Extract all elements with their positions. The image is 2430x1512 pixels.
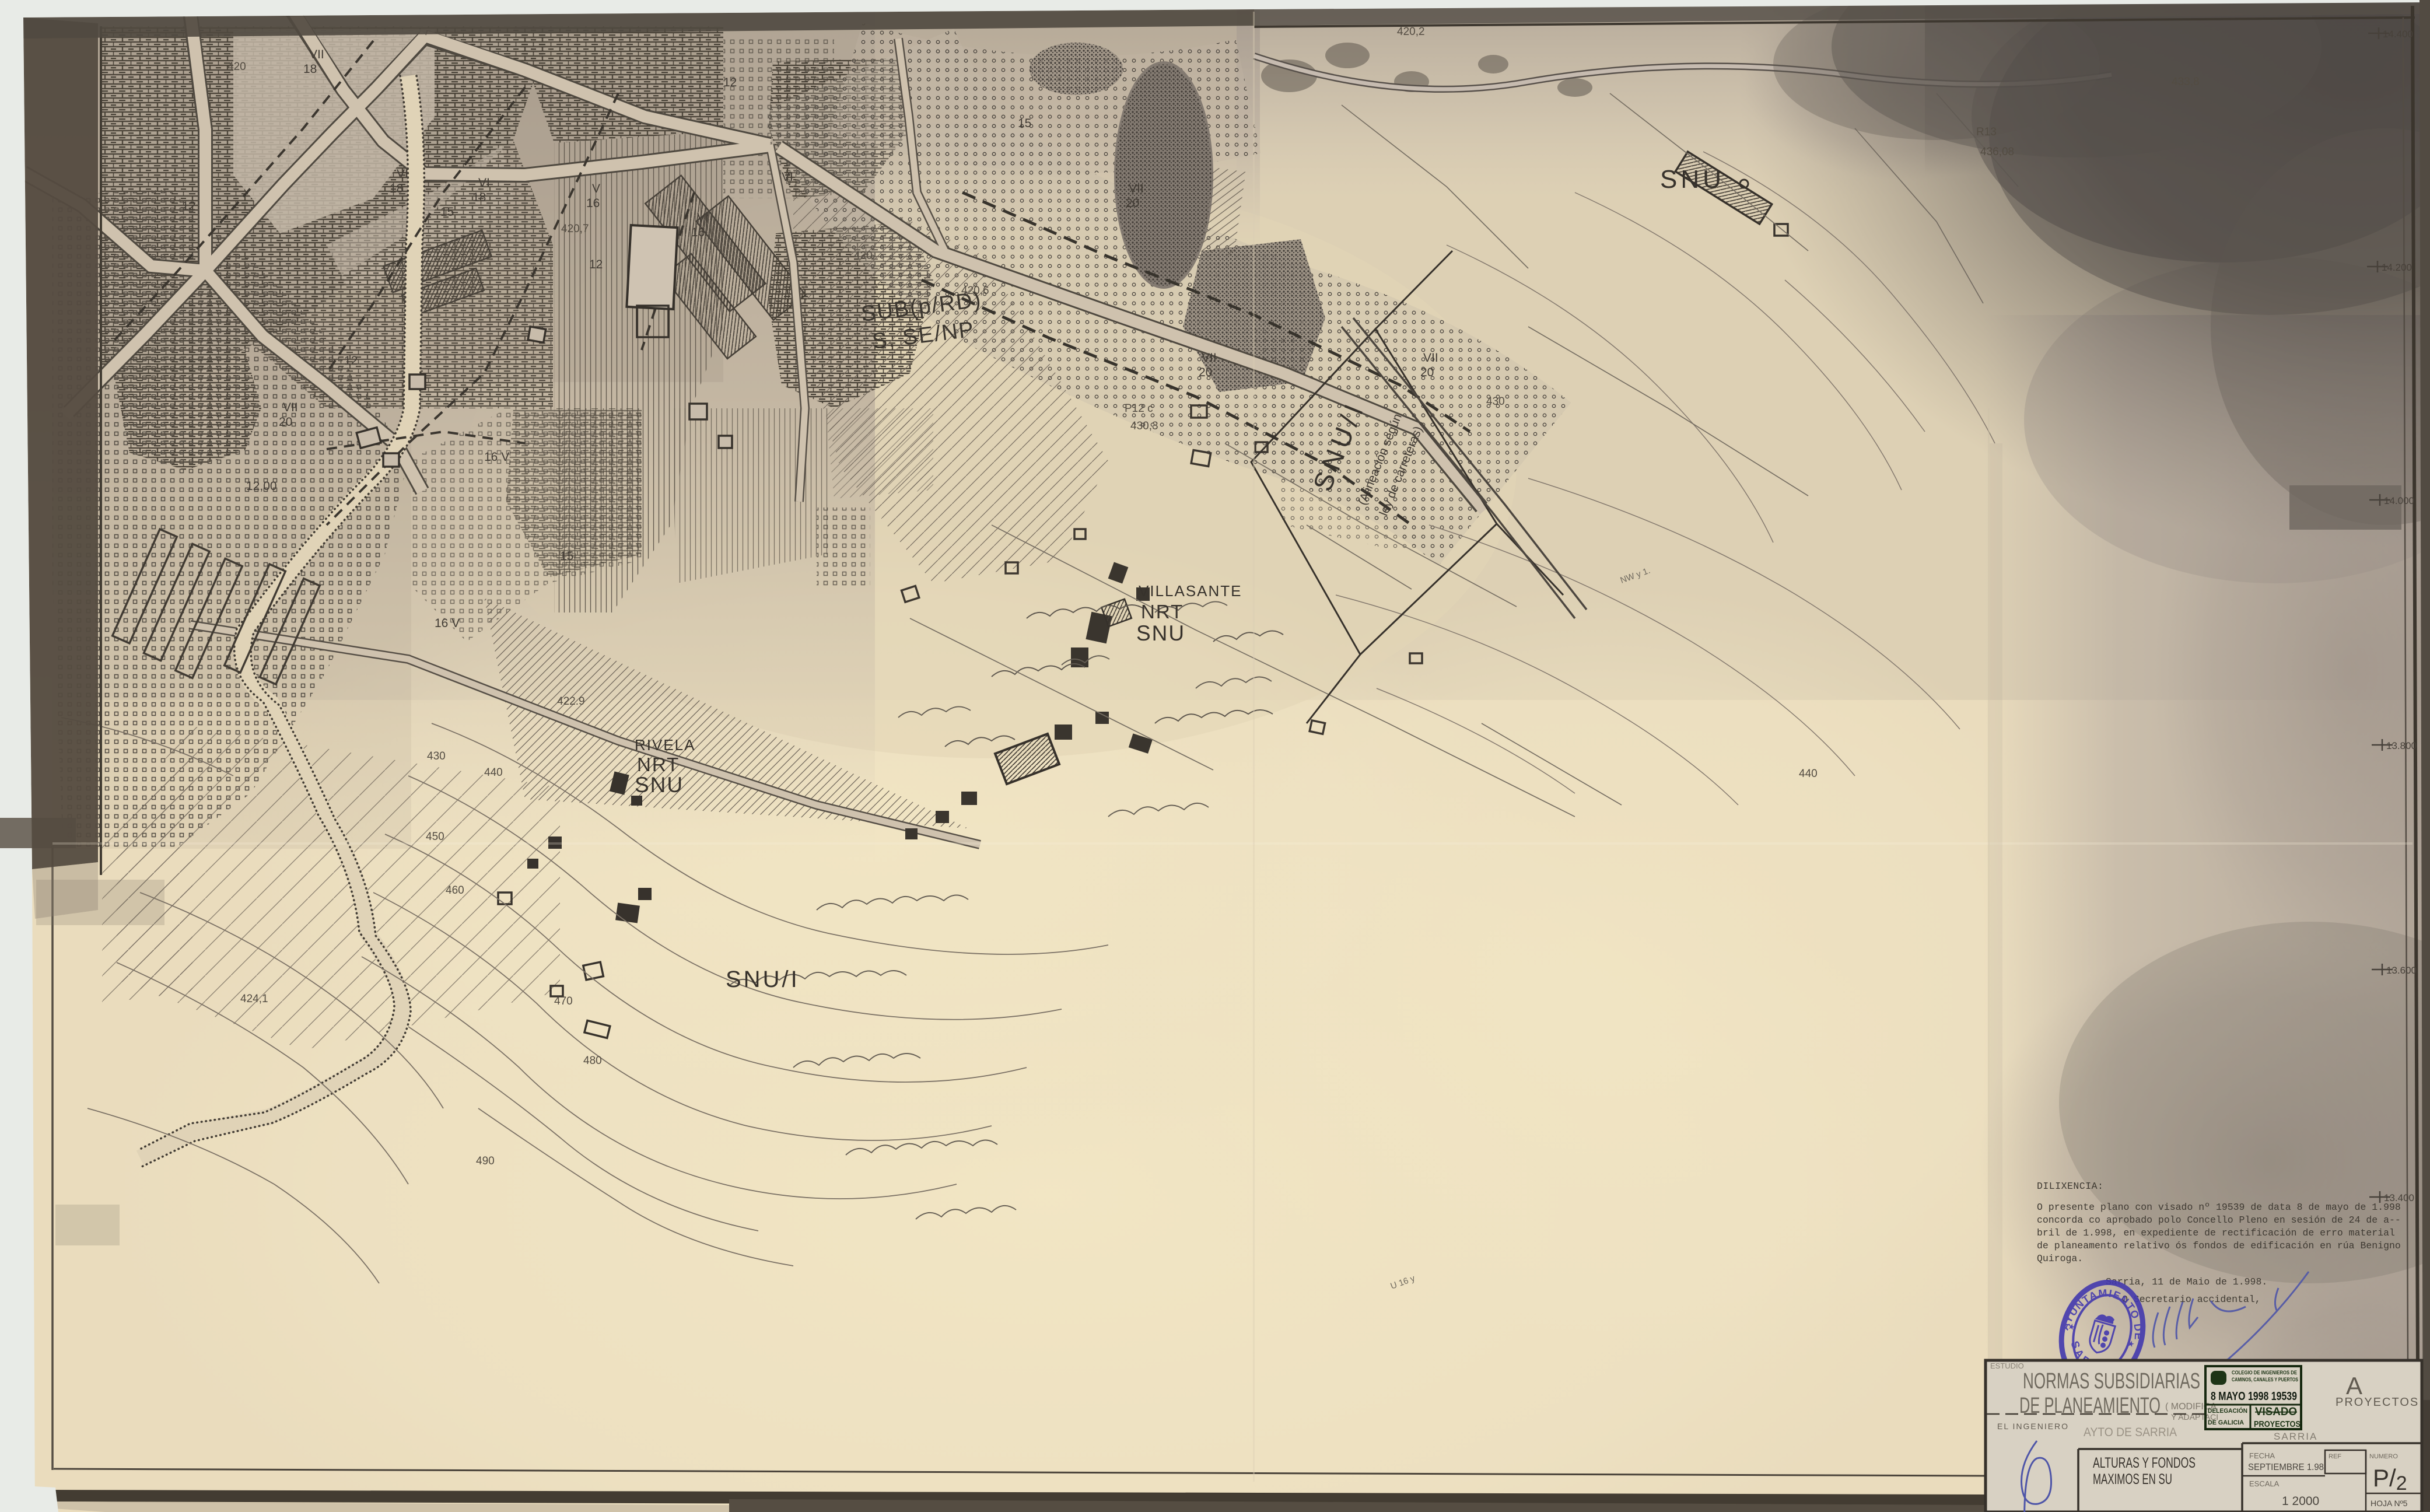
svg-text:15: 15: [560, 549, 573, 563]
svg-text:12,00: 12,00: [246, 480, 277, 493]
svg-text:20: 20: [279, 415, 292, 429]
svg-text:V: V: [592, 182, 600, 195]
svg-text:PROYECTOS: PROYECTOS: [2336, 1396, 2419, 1409]
svg-text:PROYECTOS: PROYECTOS: [2254, 1419, 2301, 1429]
svg-text:REF: REF: [2329, 1453, 2341, 1460]
svg-text:12: 12: [723, 76, 737, 89]
svg-text:460: 460: [446, 884, 464, 897]
svg-text:20: 20: [1420, 366, 1434, 379]
svg-text:SNU: SNU: [1660, 165, 1725, 194]
svg-text:1 2000: 1 2000: [2282, 1494, 2319, 1508]
svg-text:VII: VII: [1202, 351, 1217, 365]
svg-text:470: 470: [554, 995, 573, 1007]
svg-text:RIVELA: RIVELA: [635, 736, 696, 754]
svg-text:420: 420: [227, 61, 246, 73]
svg-text:HOJA Nº5: HOJA Nº5: [2371, 1499, 2408, 1508]
svg-text:COLEGIO DE INGENIEROS DE: COLEGIO DE INGENIEROS DE: [2232, 1370, 2297, 1376]
svg-text:VII: VII: [1423, 351, 1438, 365]
svg-text:VI: VI: [782, 170, 793, 184]
svg-text:NUMERO: NUMERO: [2369, 1453, 2398, 1460]
svg-text:DELEGACIÓN: DELEGACIÓN: [2208, 1407, 2247, 1415]
svg-text:A: A: [2346, 1372, 2362, 1399]
svg-text:NRT: NRT: [637, 754, 680, 775]
svg-text:ESTUDIO: ESTUDIO: [1990, 1361, 2024, 1370]
svg-text:VILLASANTE: VILLASANTE: [1139, 582, 1242, 600]
svg-text:420: 420: [854, 250, 873, 262]
svg-text:SNU/I: SNU/I: [726, 967, 800, 992]
svg-text:DE GALICIA: DE GALICIA: [2208, 1419, 2244, 1426]
svg-text:14.000: 14.000: [2384, 495, 2414, 506]
svg-text:440: 440: [484, 766, 503, 779]
svg-text:CAMINOS, CANALES Y PUERTOS: CAMINOS, CANALES Y PUERTOS: [2232, 1377, 2298, 1383]
svg-text:16 V: 16 V: [435, 617, 460, 630]
svg-text:15: 15: [1018, 117, 1031, 130]
svg-text:VISADO: VISADO: [2255, 1406, 2297, 1418]
svg-text:NRT: NRT: [1141, 601, 1184, 622]
svg-text:EL INGENIERO: EL INGENIERO: [1997, 1422, 2069, 1431]
svg-text:8 MAYO 1998 19539: 8 MAYO 1998 19539: [2211, 1390, 2297, 1403]
svg-text:O presente plano con visado nº: O presente plano con visado nº 19539 de …: [2037, 1202, 2401, 1213]
svg-text:SNU: SNU: [635, 773, 684, 797]
svg-text:13.800: 13.800: [2386, 740, 2417, 751]
svg-text:18: 18: [303, 62, 317, 76]
svg-text:16: 16: [691, 226, 705, 239]
svg-text:NORMAS SUBSIDIARIAS: NORMAS SUBSIDIARIAS: [2023, 1369, 2200, 1394]
svg-text:VI: VI: [478, 176, 490, 190]
svg-text:14.400: 14.400: [2383, 29, 2413, 40]
svg-text:430: 430: [1486, 395, 1505, 408]
svg-text:18: 18: [390, 182, 403, 195]
svg-text:ESCALA: ESCALA: [2249, 1479, 2280, 1488]
svg-text:ALTURAS Y FONDOS: ALTURAS Y FONDOS: [2093, 1455, 2196, 1471]
svg-text:P12 c: P12 c: [1125, 402, 1153, 415]
svg-text:422.9: 422.9: [557, 695, 585, 708]
svg-text:R13: R13: [1976, 126, 1997, 138]
svg-text:SNU: SNU: [1136, 621, 1185, 645]
svg-text:436,08: 436,08: [1980, 146, 2014, 158]
svg-text:480: 480: [583, 1055, 602, 1067]
svg-text:433,8: 433,8: [2172, 76, 2200, 88]
svg-text:SARRIA: SARRIA: [2274, 1431, 2317, 1442]
svg-text:VI: VI: [397, 167, 408, 181]
svg-text:420,2: 420,2: [1397, 26, 1425, 38]
svg-text:16 V: 16 V: [484, 450, 509, 464]
svg-text:20: 20: [1199, 366, 1212, 379]
svg-text:14.200: 14.200: [2382, 262, 2412, 273]
svg-text:bril de 1.998, en expediente d: bril de 1.998, en expediente de rectific…: [2037, 1227, 2395, 1238]
svg-text:20: 20: [1126, 197, 1139, 210]
svg-text:AYTO DE SARRIA: AYTO DE SARRIA: [2084, 1426, 2177, 1439]
svg-text:424,1: 424,1: [240, 993, 268, 1005]
svg-text:18: 18: [472, 191, 486, 204]
svg-text:MAXIMOS EN SU: MAXIMOS EN SU: [2093, 1471, 2172, 1487]
svg-text:490: 490: [476, 1155, 495, 1167]
svg-text:430: 430: [427, 750, 446, 762]
svg-text:DILIXENCIA:: DILIXENCIA:: [2037, 1181, 2103, 1192]
svg-text:12: 12: [344, 354, 358, 367]
svg-text:12: 12: [589, 258, 603, 271]
svg-text:VII: VII: [309, 48, 324, 61]
svg-text:430,3: 430,3: [1130, 420, 1158, 432]
svg-text:de planeamento relativo ós fon: de planeamento relativo ós fondos de edi…: [2037, 1240, 2401, 1251]
svg-text:SEPTIEMBRE 1.98: SEPTIEMBRE 1.98: [2248, 1462, 2324, 1472]
svg-text:420,6: 420,6: [961, 285, 989, 297]
svg-text:420,7: 420,7: [561, 223, 589, 235]
svg-text:FECHA: FECHA: [2249, 1451, 2275, 1460]
svg-text:VII: VII: [1129, 182, 1144, 195]
svg-text:13.600: 13.600: [2386, 965, 2417, 976]
svg-text:12: 12: [182, 199, 195, 213]
svg-text:440: 440: [1799, 768, 1818, 780]
svg-text:VI: VI: [697, 211, 709, 225]
svg-text:Quiroga.: Quiroga.: [2037, 1253, 2083, 1264]
svg-text:450: 450: [426, 831, 444, 843]
svg-text:16: 16: [586, 197, 600, 210]
svg-text:Sarria, 11 de Maio de 1.998.: Sarria, 11 de Maio de 1.998.: [2106, 1276, 2267, 1287]
svg-text:concorda co aprobado polo Conc: concorda co aprobado polo Concello Pleno…: [2037, 1214, 2401, 1226]
svg-text:15: 15: [440, 205, 454, 219]
svg-text:VII: VII: [283, 401, 298, 414]
